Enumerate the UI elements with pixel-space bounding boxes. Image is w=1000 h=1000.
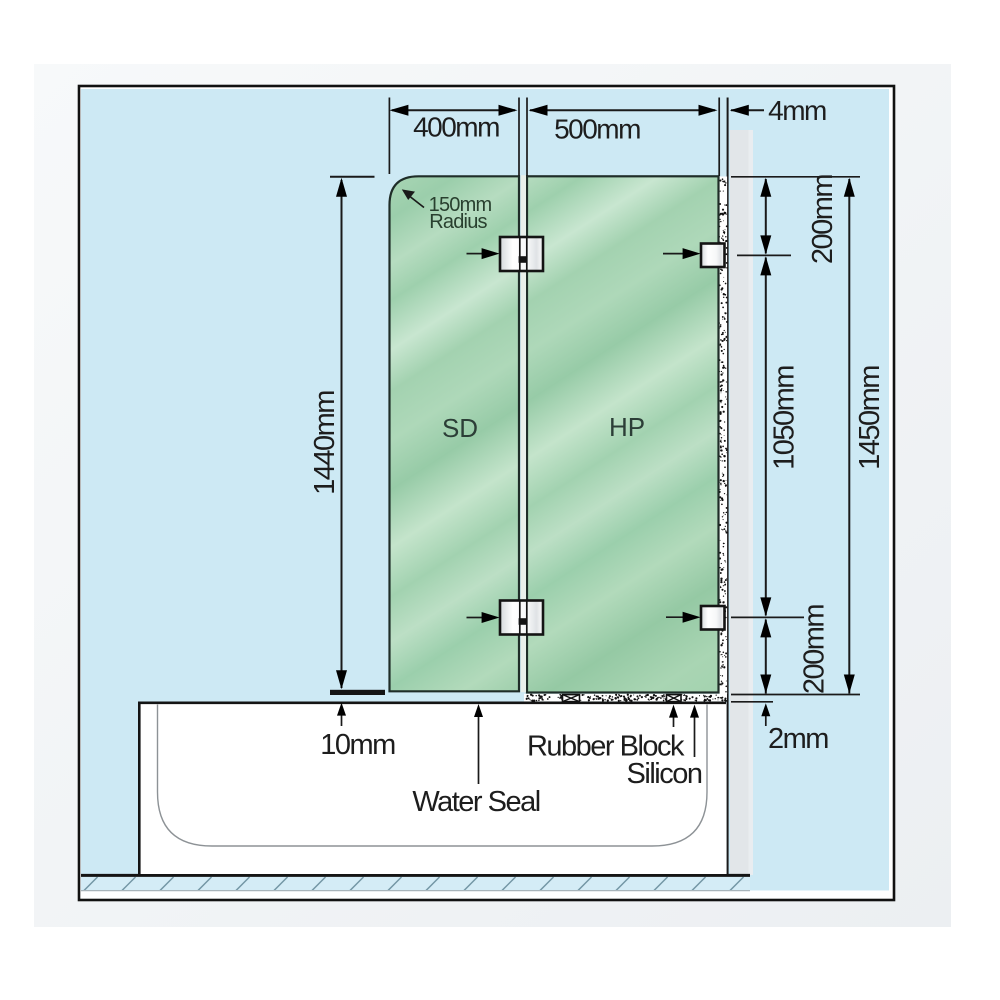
svg-text:Water Seal: Water Seal [412, 786, 539, 818]
svg-text:200mm: 200mm [807, 175, 839, 265]
svg-text:HP: HP [609, 412, 645, 442]
svg-text:4mm: 4mm [768, 95, 826, 126]
svg-text:400mm: 400mm [413, 112, 499, 143]
svg-text:10mm: 10mm [320, 729, 395, 761]
svg-text:500mm: 500mm [554, 114, 640, 145]
svg-text:Radius: Radius [429, 211, 487, 233]
svg-text:1450mm: 1450mm [854, 366, 886, 470]
svg-text:Silicon: Silicon [627, 758, 702, 790]
svg-text:SD: SD [442, 413, 478, 443]
svg-text:200mm: 200mm [799, 605, 831, 695]
svg-text:2mm: 2mm [768, 723, 828, 755]
svg-text:1050mm: 1050mm [769, 366, 801, 470]
svg-text:1440mm: 1440mm [309, 391, 341, 495]
